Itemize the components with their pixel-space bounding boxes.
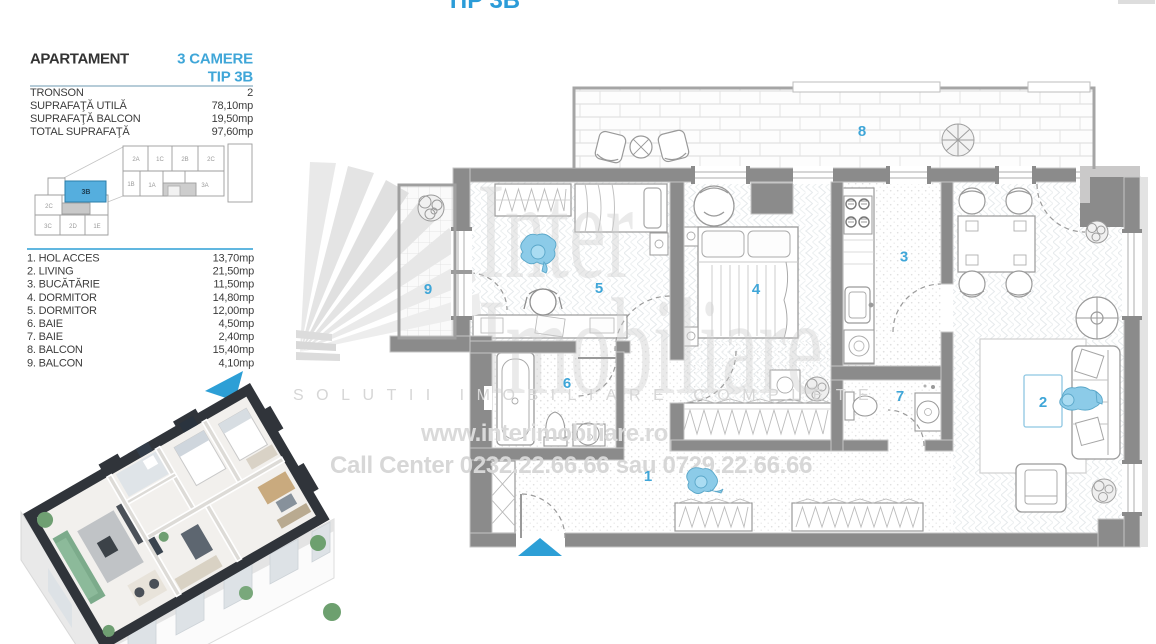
- svg-text:12,00mp: 12,00mp: [213, 305, 254, 317]
- svg-text:78,10mp: 78,10mp: [212, 100, 253, 112]
- svg-text:4,50mp: 4,50mp: [219, 318, 255, 330]
- svg-text:1E: 1E: [93, 224, 100, 230]
- svg-text:2: 2: [247, 87, 253, 99]
- svg-text:1C: 1C: [156, 157, 164, 163]
- svg-text:4,10mp: 4,10mp: [219, 357, 255, 369]
- svg-text:3. BUCĂTĂRIE: 3. BUCĂTĂRIE: [27, 278, 100, 291]
- svg-text:13,70mp: 13,70mp: [213, 253, 254, 265]
- svg-text:2. LIVING: 2. LIVING: [27, 266, 74, 278]
- svg-text:2B: 2B: [181, 157, 188, 163]
- svg-text:14,80mp: 14,80mp: [213, 292, 254, 304]
- svg-text:3A: 3A: [201, 183, 208, 189]
- svg-text:www.interimobiliare.ro: www.interimobiliare.ro: [420, 420, 668, 447]
- svg-text:1B: 1B: [127, 182, 134, 188]
- svg-text:8: 8: [858, 123, 866, 140]
- svg-text:4. DORMITOR: 4. DORMITOR: [27, 292, 97, 304]
- svg-text:1: 1: [644, 468, 652, 485]
- svg-text:SUPRAFAŢĂ BALCON: SUPRAFAŢĂ BALCON: [30, 112, 141, 125]
- svg-text:3C: 3C: [44, 224, 52, 230]
- svg-text:6: 6: [563, 375, 571, 392]
- svg-text:97,60mp: 97,60mp: [212, 126, 253, 138]
- svg-text:2,40mp: 2,40mp: [219, 331, 255, 343]
- svg-text:5: 5: [595, 280, 603, 297]
- svg-text:8. BALCON: 8. BALCON: [27, 344, 83, 356]
- svg-text:APARTAMENT: APARTAMENT: [30, 51, 129, 68]
- svg-text:19,50mp: 19,50mp: [212, 113, 253, 125]
- svg-text:SUPRAFAŢĂ UTILĂ: SUPRAFAŢĂ UTILĂ: [30, 99, 127, 112]
- svg-text:7. BAIE: 7. BAIE: [27, 331, 63, 343]
- svg-text:15,40mp: 15,40mp: [213, 344, 254, 356]
- svg-text:9: 9: [424, 281, 432, 298]
- svg-text:3 CAMERE: 3 CAMERE: [177, 51, 253, 68]
- svg-text:TRONSON: TRONSON: [30, 87, 84, 99]
- svg-text:2C: 2C: [207, 157, 215, 163]
- svg-text:21,50mp: 21,50mp: [213, 266, 254, 278]
- svg-text:TOTAL SUPRAFAŢĂ: TOTAL SUPRAFAŢĂ: [30, 125, 130, 138]
- svg-text:2: 2: [1039, 394, 1047, 411]
- svg-text:TIP 3B: TIP 3B: [208, 69, 254, 86]
- svg-text:7: 7: [896, 388, 904, 405]
- svg-text:9. BALCON: 9. BALCON: [27, 357, 83, 369]
- svg-text:4: 4: [752, 281, 761, 298]
- svg-text:11,50mp: 11,50mp: [213, 279, 254, 291]
- svg-text:Call Center 0232.22.66.66 sau: Call Center 0232.22.66.66 sau 0729.22.66…: [330, 452, 812, 479]
- svg-text:3: 3: [900, 249, 908, 266]
- svg-text:3B: 3B: [82, 189, 91, 196]
- svg-text:2C: 2C: [45, 204, 53, 210]
- svg-text:5. DORMITOR: 5. DORMITOR: [27, 305, 97, 317]
- svg-text:1. HOL ACCES: 1. HOL ACCES: [27, 253, 99, 265]
- svg-text:6. BAIE: 6. BAIE: [27, 318, 63, 330]
- svg-text:2A: 2A: [132, 157, 139, 163]
- svg-text:1A: 1A: [148, 183, 155, 189]
- svg-text:TIP 3B: TIP 3B: [446, 0, 520, 14]
- svg-text:SOLUTII IMOBILIARE COMPLETE: SOLUTII IMOBILIARE COMPLETE: [293, 387, 881, 404]
- svg-text:2D: 2D: [69, 224, 77, 230]
